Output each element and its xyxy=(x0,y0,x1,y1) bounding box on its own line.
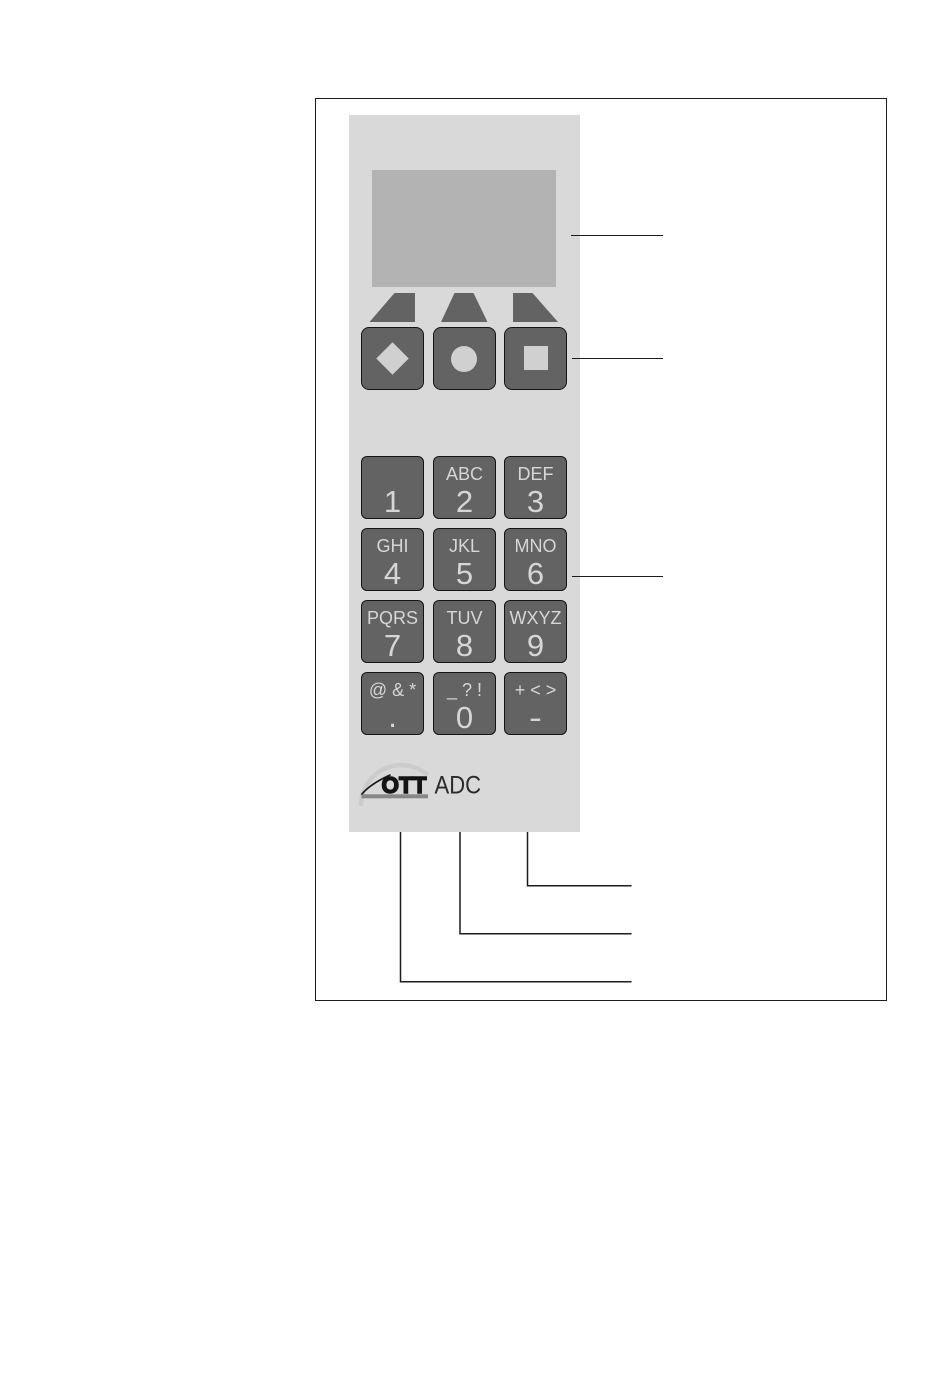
svg-text:OTT: OTT xyxy=(382,772,427,798)
svg-text:ADC: ADC xyxy=(435,771,482,799)
